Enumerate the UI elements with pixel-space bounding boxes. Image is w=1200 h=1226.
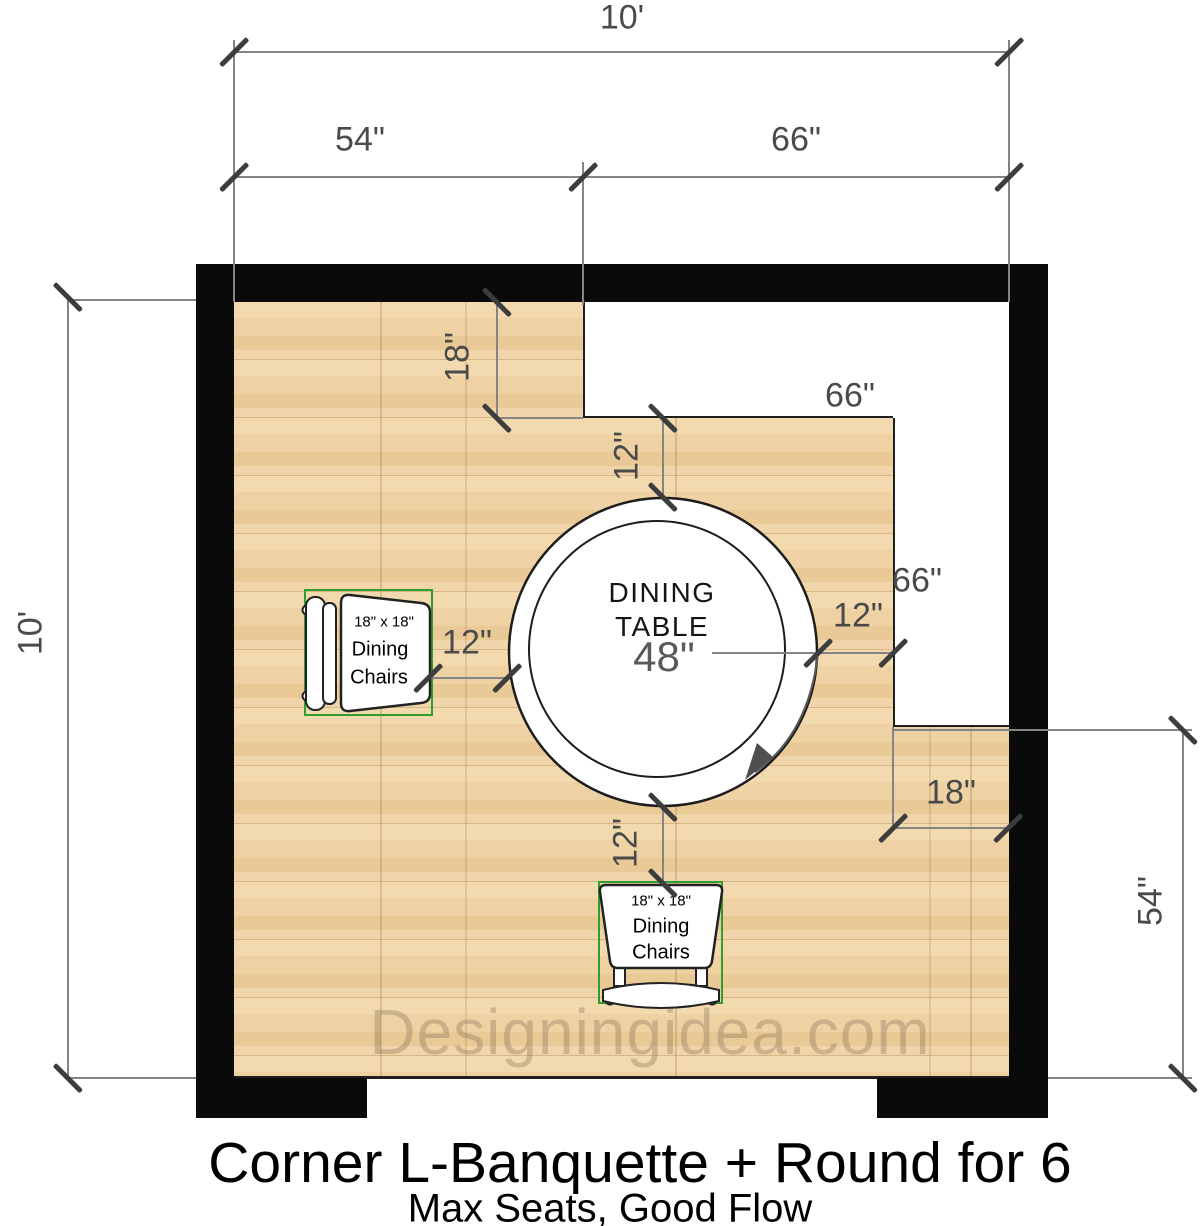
dim-label-clearance-banquette-right: 12"	[833, 597, 883, 636]
bottom-chair-label-line2: Chairs	[632, 942, 690, 965]
dim-label-banquette-right-depth: 18"	[926, 774, 976, 813]
extension-line	[893, 729, 1192, 731]
wall-left	[196, 264, 234, 1118]
dimension-line	[234, 51, 1009, 53]
table-label-line1: DINING	[609, 577, 716, 609]
dim-label-banquette-top-depth: 18"	[439, 332, 478, 382]
left-chair-label-line1: Dining	[352, 639, 409, 662]
dimension-line	[712, 652, 893, 654]
dim-label-right-lower: 54"	[1132, 876, 1171, 926]
table-diameter-label: 48"	[633, 633, 695, 681]
banquette-top-leg-edge	[583, 416, 893, 418]
extension-line	[496, 417, 583, 419]
dim-label-clearance-chair-bottom: 12"	[607, 818, 646, 868]
plan-subtitle: Max Seats, Good Flow	[408, 1187, 813, 1226]
dim-label-overall-width: 10'	[600, 0, 644, 38]
dimension-line	[428, 677, 507, 679]
extension-line	[1048, 1077, 1192, 1079]
dim-label-overall-height: 10'	[12, 611, 51, 655]
bottom-chair-size-label: 18" x 18"	[631, 893, 691, 910]
dimension-line	[234, 176, 1009, 178]
dim-label-clearance-banquette-top: 12"	[608, 431, 647, 481]
extension-line	[68, 299, 196, 301]
wall-top	[196, 264, 1048, 302]
extension-line	[892, 727, 894, 830]
dimension-line	[1182, 730, 1184, 1078]
dimension-line	[496, 302, 498, 418]
extension-line	[582, 162, 584, 305]
dimension-line	[662, 807, 664, 883]
wall-bottom-right	[877, 1078, 1048, 1118]
extension-line	[1008, 40, 1010, 302]
dim-label-top-left-segment: 54"	[335, 121, 385, 160]
watermark: Designingidea.com	[369, 995, 930, 1069]
banquette-top-leg	[583, 302, 1009, 418]
extension-line	[68, 1077, 196, 1079]
dim-label-top-right-segment: 66"	[771, 121, 821, 160]
wall-bottom-left	[196, 1078, 367, 1118]
dimension-line	[893, 827, 1008, 829]
extension-line	[233, 40, 235, 302]
bottom-chair-label-line1: Dining	[633, 916, 690, 939]
dim-label-banquette-top-length: 66"	[825, 377, 875, 416]
dim-label-clearance-chair-left: 12"	[442, 624, 492, 663]
dim-label-banquette-right-length: 66"	[892, 562, 942, 601]
floor-plan-canvas: Designingidea.com DINING TABLE 48" 18" x…	[0, 0, 1200, 1226]
left-chair-size-label: 18" x 18"	[354, 614, 414, 631]
dimension-line	[67, 297, 69, 1078]
left-chair-label-line2: Chairs	[350, 667, 408, 690]
wall-right	[1009, 264, 1048, 1118]
dimension-line	[662, 418, 664, 497]
